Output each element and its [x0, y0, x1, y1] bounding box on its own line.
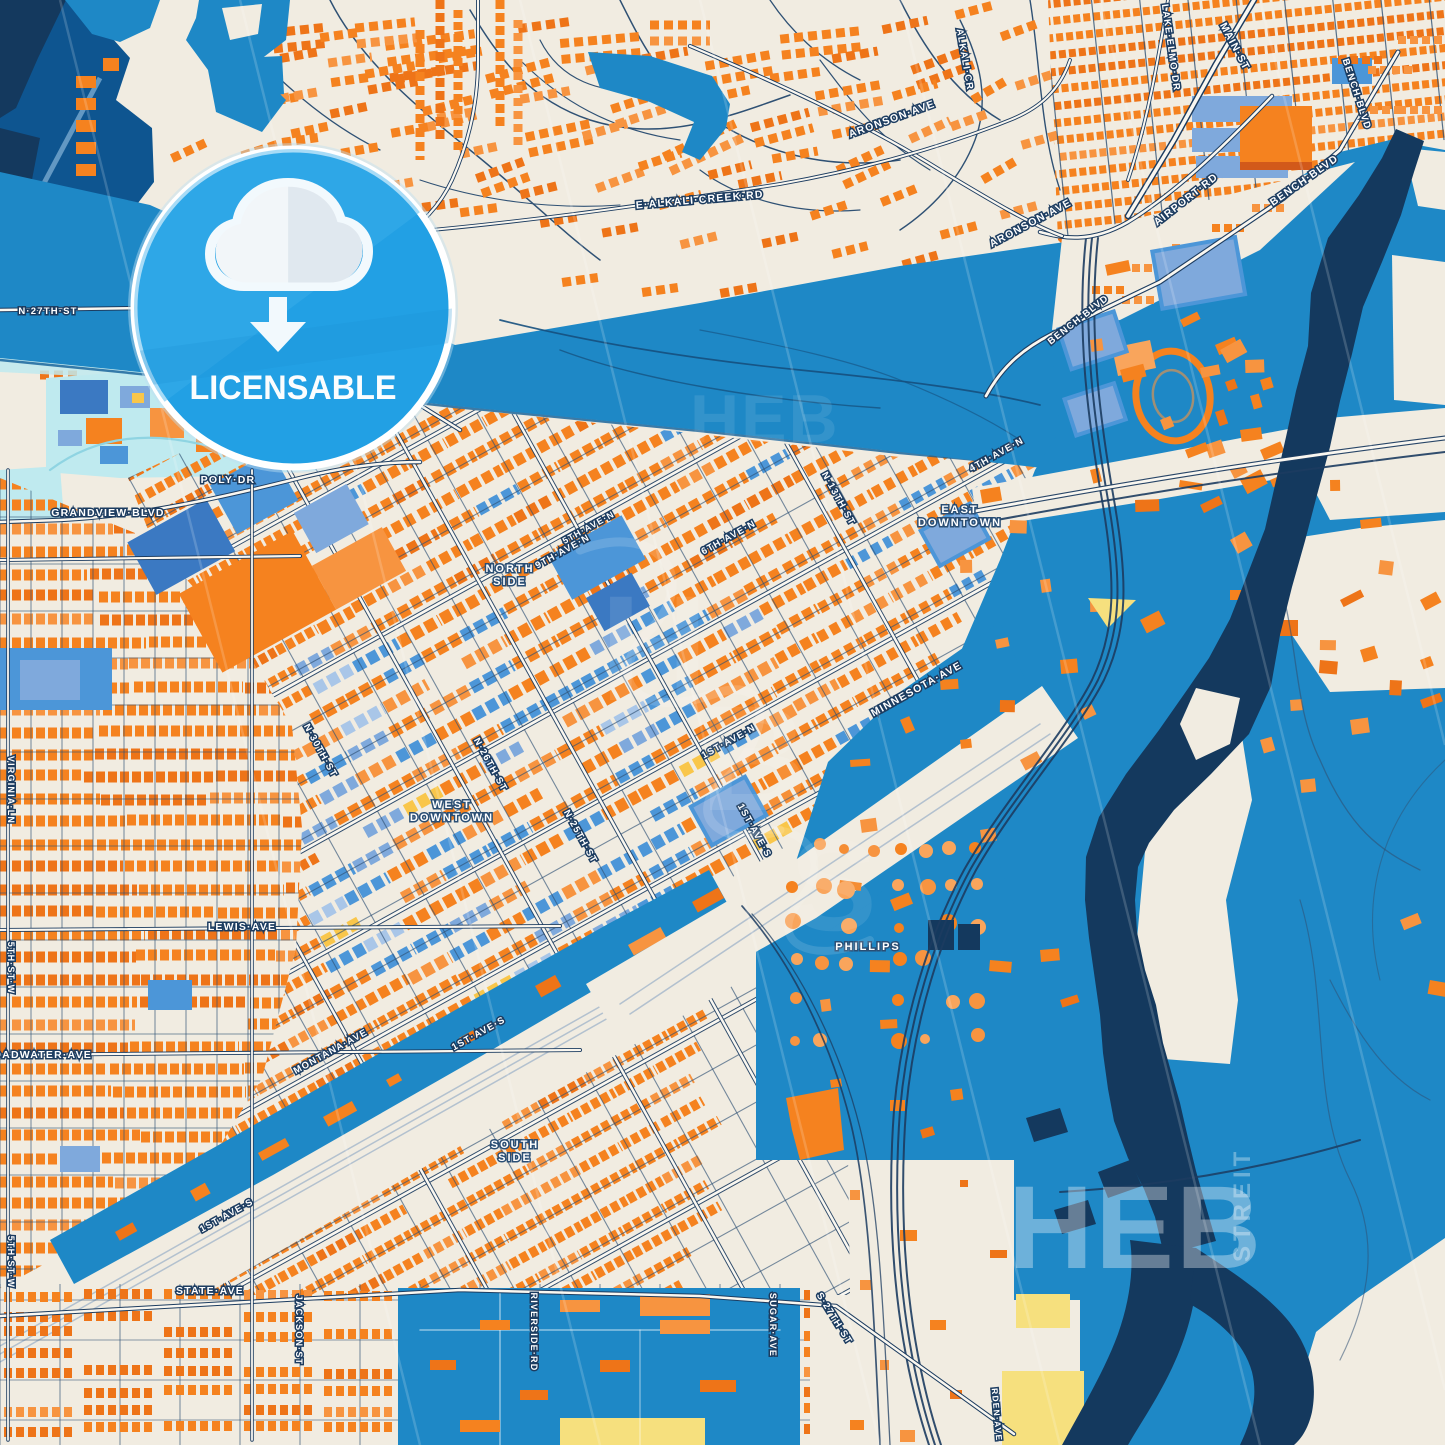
svg-text:LICENSABLE: LICENSABLE	[190, 369, 397, 407]
svg-text:STATE·AVE: STATE·AVE	[176, 1285, 244, 1297]
svg-text:LEWIS·AVE: LEWIS·AVE	[208, 921, 276, 933]
svg-text:DOWNTOWN: DOWNTOWN	[410, 812, 494, 824]
svg-text:POLY·DR: POLY·DR	[201, 474, 256, 486]
svg-text:5TH·ST·W: 5TH·ST·W	[6, 1236, 16, 1289]
svg-text:NORTH: NORTH	[485, 563, 534, 575]
svg-text:ROADWATER·AVE: ROADWATER·AVE	[0, 1049, 92, 1061]
svg-text:SOUTH: SOUTH	[491, 1139, 540, 1151]
svg-text:DOWNTOWN: DOWNTOWN	[918, 517, 1002, 529]
svg-text:HEB: HEB	[1008, 1162, 1263, 1294]
svg-text:H: H	[600, 564, 708, 732]
svg-text:5TH·ST·W: 5TH·ST·W	[6, 942, 16, 995]
svg-text:RIVERSIDE·RD: RIVERSIDE·RD	[529, 1293, 539, 1372]
svg-text:HEB: HEB	[690, 381, 840, 457]
svg-text:GRANDVIEW·BLVD: GRANDVIEW·BLVD	[51, 507, 164, 519]
svg-text:S: S	[790, 812, 877, 958]
svg-text:VIRGINIA·LN: VIRGINIA·LN	[6, 756, 16, 824]
svg-text:JACKSON·ST: JACKSON·ST	[294, 1295, 304, 1366]
svg-text:EAST: EAST	[941, 504, 978, 516]
svg-text:SUGAR·AVE: SUGAR·AVE	[768, 1293, 778, 1357]
svg-text:SIDE: SIDE	[493, 576, 527, 588]
svg-text:STREIT: STREIT	[1229, 1147, 1256, 1262]
svg-text:WEST: WEST	[432, 799, 472, 811]
svg-text:N·27TH·ST: N·27TH·ST	[18, 306, 77, 317]
